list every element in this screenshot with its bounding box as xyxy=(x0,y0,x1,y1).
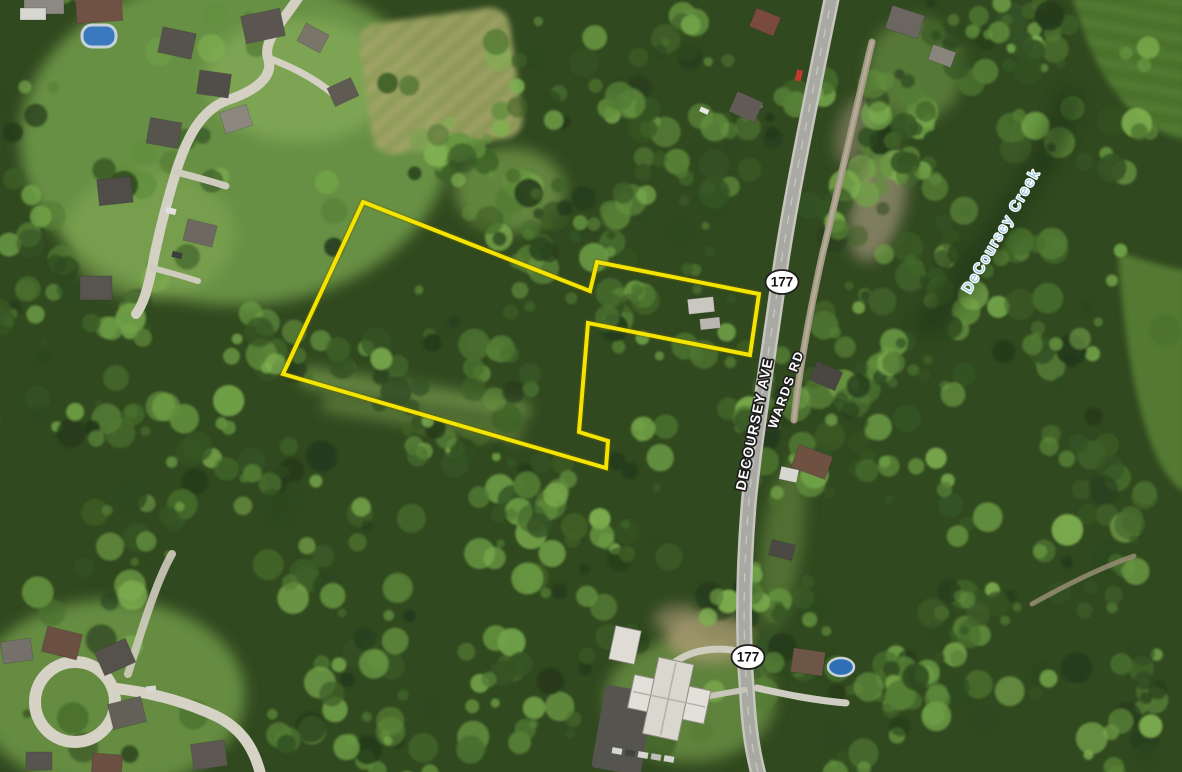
route-shield-177-north: 177 xyxy=(766,270,799,294)
satellite-map[interactable]: DECOURSEY AVE WARDS RD DeCoursey Creek 1… xyxy=(0,0,1182,772)
swimming-pool xyxy=(82,25,116,47)
route-shield-177-south: 177 xyxy=(732,645,765,669)
map-canvas: DECOURSEY AVE WARDS RD DeCoursey Creek 1… xyxy=(0,0,1182,772)
route-shield-number: 177 xyxy=(771,275,794,290)
trailer xyxy=(687,297,714,315)
swimming-pool xyxy=(828,658,854,676)
route-shield-number: 177 xyxy=(737,650,760,665)
